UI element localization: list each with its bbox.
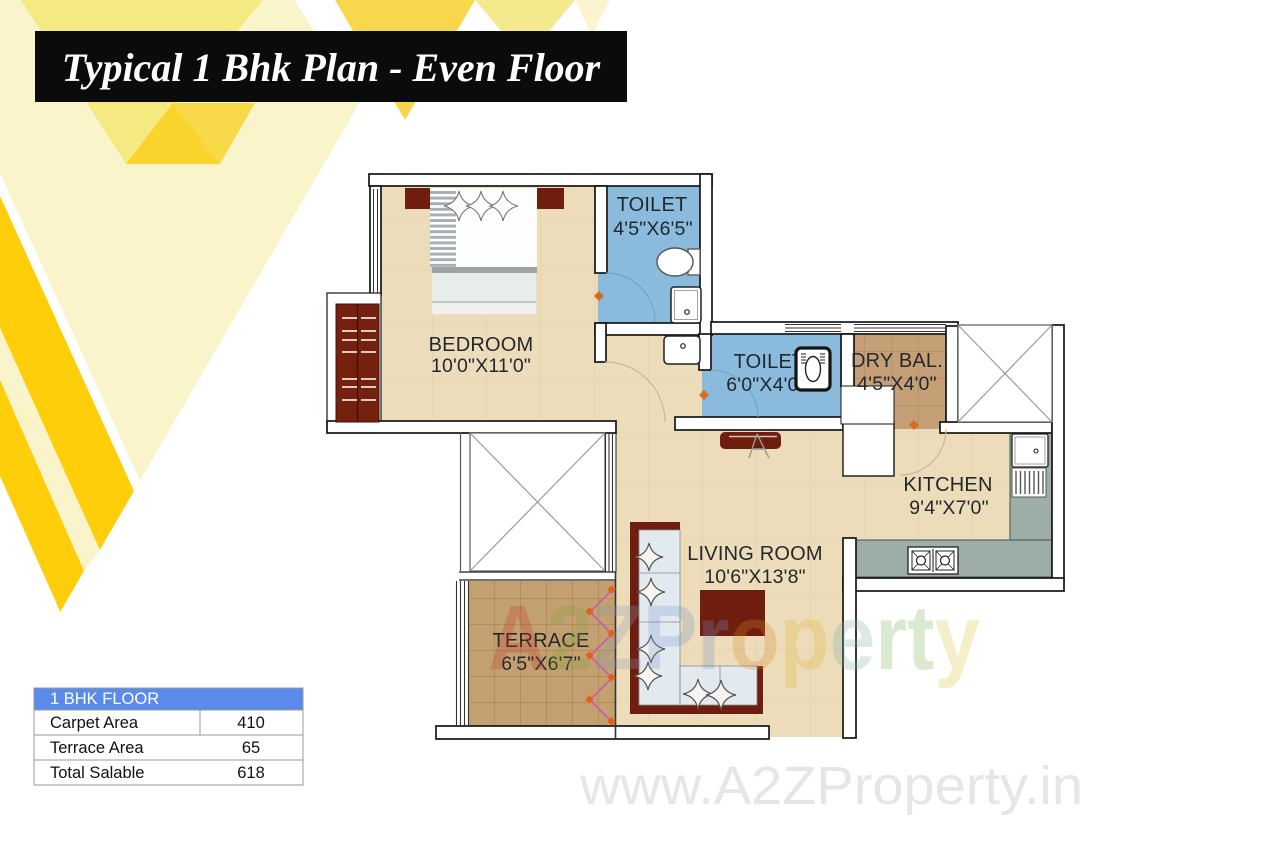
svg-text:A2ZProperty: A2ZProperty: [488, 587, 980, 689]
svg-text:65: 65: [242, 739, 260, 757]
svg-text:4'5"X4'0": 4'5"X4'0": [857, 373, 936, 395]
svg-text:6'0"X4'0": 6'0"X4'0": [726, 374, 805, 396]
svg-text:618: 618: [237, 764, 265, 782]
svg-text:TOILET: TOILET: [734, 351, 805, 373]
svg-text:Carpet Area: Carpet Area: [50, 714, 139, 732]
svg-text:KITCHEN: KITCHEN: [903, 474, 992, 496]
svg-text:10'0"X11'0": 10'0"X11'0": [431, 355, 531, 377]
svg-text:410: 410: [237, 714, 265, 732]
svg-text:4'5"X6'5": 4'5"X6'5": [613, 218, 692, 240]
svg-text:LIVING ROOM: LIVING ROOM: [687, 543, 823, 565]
svg-text:DRY BAL.: DRY BAL.: [851, 350, 943, 372]
svg-text:1 BHK FLOOR: 1 BHK FLOOR: [50, 690, 159, 708]
svg-text:BEDROOM: BEDROOM: [429, 334, 534, 356]
svg-text:www.A2ZProperty.in: www.A2ZProperty.in: [579, 756, 1083, 816]
svg-text:Total Salable: Total Salable: [50, 764, 144, 782]
svg-text:9'4"X7'0": 9'4"X7'0": [909, 497, 988, 519]
svg-text:Typical 1 Bhk Plan - Even Fl: Typical 1 Bhk Plan - Even Floor: [62, 45, 601, 90]
svg-text:Terrace Area: Terrace Area: [50, 739, 144, 757]
svg-text:TOILET: TOILET: [617, 194, 688, 216]
svg-text:10'6"X13'8": 10'6"X13'8": [704, 566, 806, 588]
